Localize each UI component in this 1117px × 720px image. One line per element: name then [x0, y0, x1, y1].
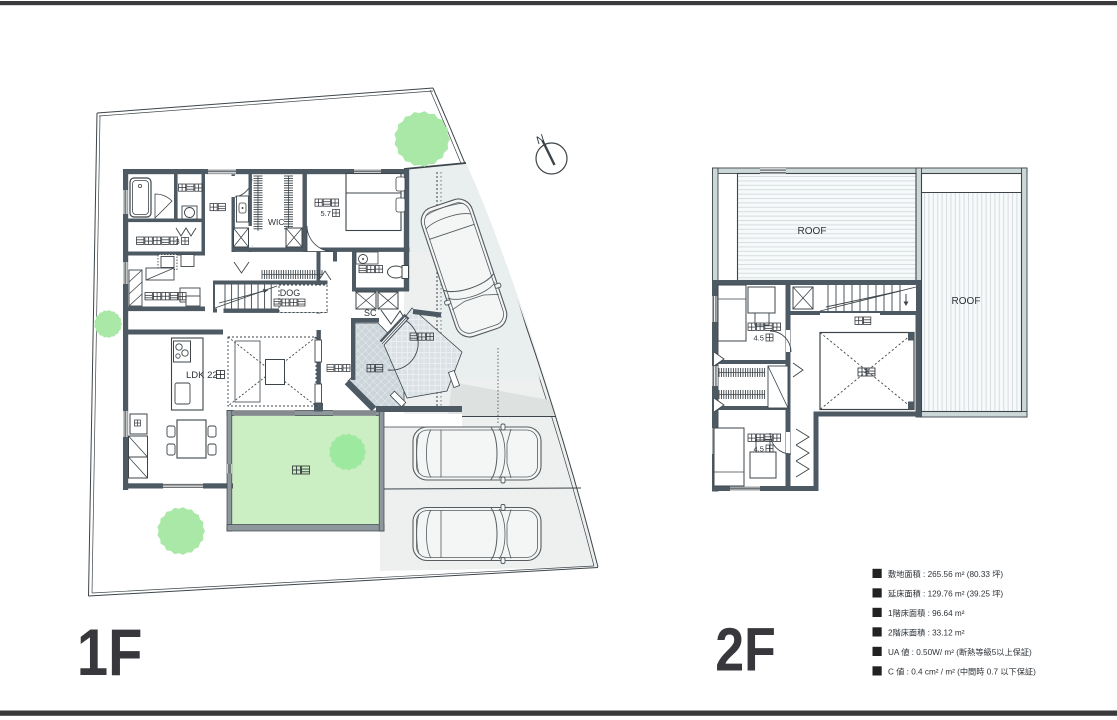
- svg-text:延床面積 : 129.76 m² (39.25 坪): 延床面積 : 129.76 m² (39.25 坪): [888, 589, 1003, 599]
- svg-text:敷地面積 : 265.56 m² (80.33 坪): 敷地面積 : 265.56 m² (80.33 坪): [888, 569, 1003, 579]
- svg-text:2F: 2F: [715, 616, 776, 684]
- svg-text:DOG: DOG: [280, 288, 301, 298]
- svg-text:UA 値 : 0.50W/ m² (断熱等級5以上保証): UA 値 : 0.50W/ m² (断熱等級5以上保証): [888, 647, 1032, 657]
- svg-text:ROOF: ROOF: [798, 226, 827, 237]
- svg-text:2階床面積 : 33.12 m²: 2階床面積 : 33.12 m²: [888, 628, 965, 638]
- svg-text:3: 3: [176, 237, 180, 246]
- svg-text:SC: SC: [364, 308, 377, 318]
- svg-text:WIC: WIC: [268, 217, 285, 227]
- svg-text:C 値 : 0.4 cm² / m² (中間時 0.7 以下: C 値 : 0.4 cm² / m² (中間時 0.7 以下保証): [888, 667, 1036, 677]
- svg-text:1階床面積 : 96.64 m²: 1階床面積 : 96.64 m²: [888, 608, 965, 618]
- svg-text:4.5: 4.5: [754, 445, 764, 454]
- svg-text:4.5: 4.5: [754, 334, 764, 343]
- svg-text:ROOF: ROOF: [952, 296, 981, 307]
- svg-text:LDK 22: LDK 22: [186, 370, 218, 381]
- svg-text:1F: 1F: [77, 616, 142, 689]
- svg-text:5.7: 5.7: [321, 209, 331, 218]
